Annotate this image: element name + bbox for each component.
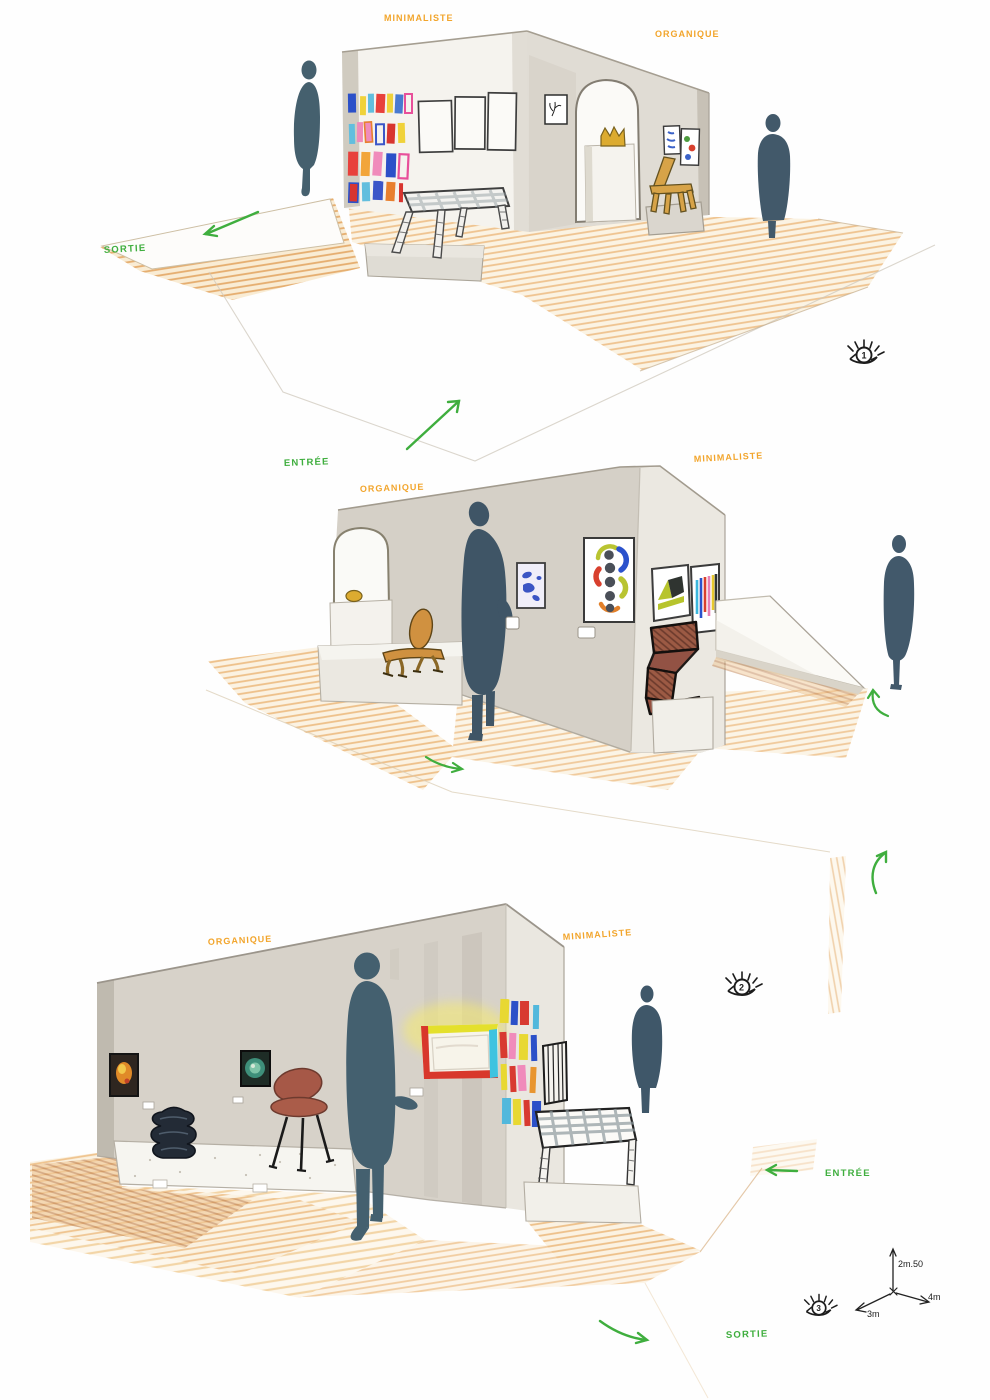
svg-text:3m: 3m — [867, 1309, 880, 1319]
svg-text:ENTRÉE: ENTRÉE — [284, 456, 330, 469]
svg-text:MINIMALISTE: MINIMALISTE — [384, 13, 454, 23]
svg-text:SORTIE: SORTIE — [104, 243, 147, 256]
svg-text:2m.50: 2m.50 — [898, 1259, 923, 1269]
svg-text:4m: 4m — [928, 1292, 941, 1302]
svg-text:ORGANIQUE: ORGANIQUE — [655, 29, 720, 39]
svg-text:1: 1 — [862, 351, 867, 361]
svg-text:2: 2 — [739, 983, 744, 993]
svg-text:3: 3 — [816, 1304, 821, 1313]
svg-text:SORTIE: SORTIE — [726, 1329, 769, 1341]
svg-text:ENTRÉE: ENTRÉE — [825, 1168, 871, 1179]
